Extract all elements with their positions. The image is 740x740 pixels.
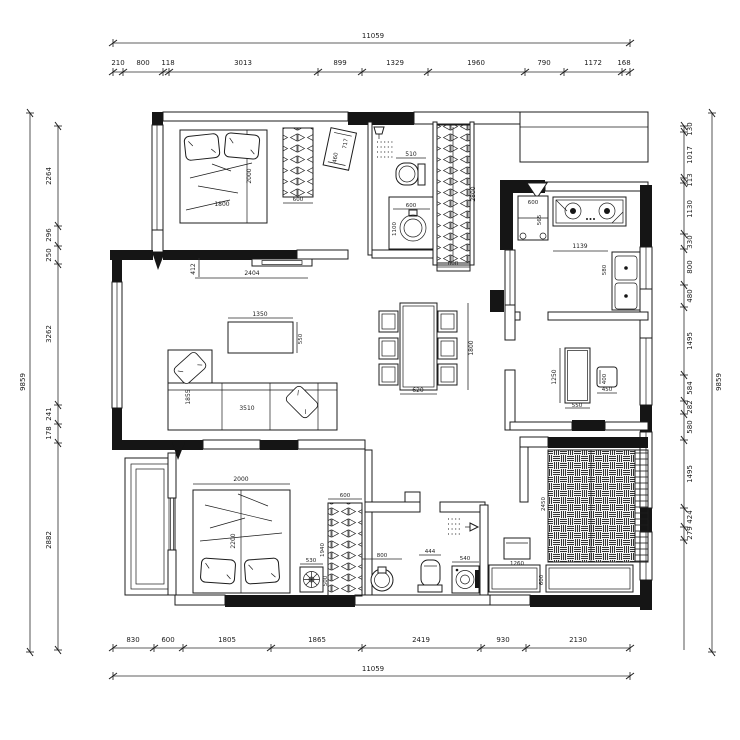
dim-seg: 800	[136, 59, 149, 67]
dim-seg: 1495	[686, 332, 694, 350]
dim-wall-gap: 412	[190, 263, 197, 275]
dimension-bottom: 830 600 1805 1865 2419 930 2130 11059	[109, 636, 634, 680]
room-bath1: 510 600 1100	[374, 127, 433, 249]
dim-dining-w: 620	[412, 387, 424, 394]
dim-seg: 250	[45, 248, 53, 261]
dim-seg: 1805	[218, 636, 236, 644]
coffee-table-icon	[228, 322, 293, 353]
floor-plan-canvas: 11059 210 800 118 3013 899 1329 1960 790…	[0, 0, 740, 740]
dim-seg: 1130	[686, 200, 694, 218]
dim-total-right: 9859	[715, 373, 723, 391]
window-bedroom1	[152, 125, 163, 230]
dim-seg: 2419	[412, 636, 430, 644]
dim-toilet: 510	[405, 151, 417, 158]
dim-counter: 1139	[572, 243, 587, 250]
dim-wardrobe-w: 600	[340, 493, 351, 499]
dim-wall-length: 2404	[244, 270, 259, 277]
room-bedroom2: 2000 2200 530 500 600 1940	[193, 476, 362, 596]
dim-seg: 424	[686, 510, 694, 524]
dim-dining-l: 1800	[468, 340, 475, 355]
dim-seg: 3262	[45, 325, 53, 343]
dim-sink: 580	[602, 264, 608, 275]
dim-seg: 1495	[686, 465, 694, 483]
dim-seg: 118	[161, 59, 174, 67]
room-kitchen: 1139 600 565 580	[518, 196, 640, 310]
shelf-icon	[635, 450, 648, 562]
room-study: 1250 550 450 400	[551, 348, 617, 409]
dim-wardrobe: 600	[293, 197, 304, 203]
dim-coffee-table-w: 1350	[252, 311, 267, 318]
dim-bed-l: 2200	[230, 533, 237, 548]
dim-closet-width: 600	[448, 261, 459, 267]
dim-basin: 800	[377, 553, 388, 559]
dim-seg: 480	[686, 289, 694, 302]
dim-seg: 1865	[308, 636, 326, 644]
balcony-platform	[520, 112, 648, 162]
dim-seg: 113	[686, 173, 694, 186]
window-study	[640, 338, 652, 405]
dim-seg: 800	[686, 260, 694, 273]
dim-seg: 3013	[234, 59, 252, 67]
dim-seg: 168	[617, 59, 630, 67]
dim-desk-l: 1250	[551, 369, 558, 384]
dim-sofa-w: 3510	[239, 405, 254, 412]
dining-table-icon	[400, 303, 437, 390]
sofa-icon	[168, 350, 337, 430]
tv-cabinet-icon	[252, 259, 312, 266]
dim-chair-w: 450	[602, 387, 613, 393]
dim-counter-d: 600	[539, 574, 545, 585]
bed-icon	[180, 130, 267, 223]
closet-icon	[437, 125, 470, 263]
bed-icon	[193, 490, 290, 593]
counter-icons	[489, 565, 633, 592]
room-tatami: 2450 600	[489, 450, 648, 592]
toilet-icon	[396, 163, 425, 185]
sink-icon	[612, 252, 640, 310]
dim-bed-length: 2000	[246, 168, 253, 183]
dim-coffee-table-d: 550	[298, 333, 304, 344]
dim-basin-l: 1100	[392, 222, 398, 236]
dim-seg: 210	[111, 59, 124, 67]
door-bedroom1	[152, 252, 165, 270]
floor-plan-drawing: 11059 210 800 118 3013 899 1329 1960 790…	[0, 0, 740, 740]
window-living	[112, 282, 122, 408]
dim-seg: 600	[161, 636, 174, 644]
wardrobe-icon	[328, 503, 362, 596]
washbasin-icon	[371, 567, 393, 591]
dim-bed-width: 1800	[214, 201, 229, 208]
dim-bed-w: 2000	[233, 476, 248, 483]
balcony-bay-window	[125, 453, 176, 595]
dimension-top: 11059 210 800 118 3013 899 1329 1960 790…	[109, 32, 634, 76]
dim-seg: 930	[496, 636, 509, 644]
dim-basin-w: 600	[406, 203, 417, 209]
dim-seg: 296	[45, 228, 53, 242]
bench-icon	[323, 128, 356, 171]
dim-tatami-l: 2450	[541, 497, 547, 511]
room-dining: 620 1800	[379, 303, 475, 394]
dim-washer: 540	[460, 556, 471, 562]
dim-desk-w: 550	[572, 403, 583, 409]
dim-seg: 2264	[45, 167, 53, 185]
dim-fridge-w: 600	[528, 200, 539, 206]
dimension-left: 9859 2264 296 250 3262 241 178 2882	[19, 109, 62, 656]
dim-seg: 1172	[584, 59, 602, 67]
dim-sofa-d: 1855	[185, 389, 192, 404]
dim-seg: 282	[686, 400, 694, 413]
dim-total-bottom: 11059	[362, 665, 384, 673]
dim-seg: 279	[686, 526, 694, 539]
dim-chair-d: 400	[602, 373, 608, 384]
dim-seg: 1017	[686, 146, 694, 164]
dim-seg: 130	[686, 122, 694, 135]
dim-seg: 899	[333, 59, 346, 67]
shower-icon	[374, 127, 395, 157]
toilet-icon	[418, 560, 442, 592]
window-hall	[505, 250, 515, 305]
dim-seg: 584	[686, 381, 694, 395]
dim-seg: 1329	[386, 59, 404, 67]
shower-icon	[448, 519, 478, 534]
nightstand-icon	[300, 567, 323, 592]
dim-seg: 830	[126, 636, 139, 644]
stove-icon	[553, 197, 626, 226]
dim-fridge-d: 565	[537, 214, 543, 225]
dim-seg: 790	[537, 59, 550, 67]
dim-total-top: 11059	[362, 32, 384, 40]
dimension-right: 9859 130 1017 113 1130 330 800 480 1495 …	[680, 109, 723, 656]
dim-seg: 2130	[569, 636, 587, 644]
room-living: 1350 550 3510 1855	[168, 311, 337, 430]
desk-icon	[565, 348, 590, 403]
dim-seg: 1960	[467, 59, 485, 67]
wardrobe-icon	[283, 128, 313, 197]
dim-closet-length: 2800	[470, 186, 477, 201]
dim-seg: 330	[686, 235, 694, 248]
dim-seg: 241	[45, 407, 53, 420]
tatami-bed-icon	[548, 450, 635, 562]
dim-wardrobe-l: 1940	[320, 543, 326, 557]
dim-stand-d: 500	[323, 575, 329, 586]
dim-stand-w: 530	[306, 558, 317, 564]
cabinet-icon	[504, 538, 530, 559]
dim-total-left: 9859	[19, 373, 27, 391]
washer-icon	[452, 566, 479, 593]
dim-seg: 178	[45, 426, 53, 439]
window-kitchen	[640, 247, 652, 289]
dim-toilet: 444	[425, 549, 436, 555]
dim-seg: 580	[686, 420, 694, 433]
dim-seg: 2882	[45, 531, 53, 549]
